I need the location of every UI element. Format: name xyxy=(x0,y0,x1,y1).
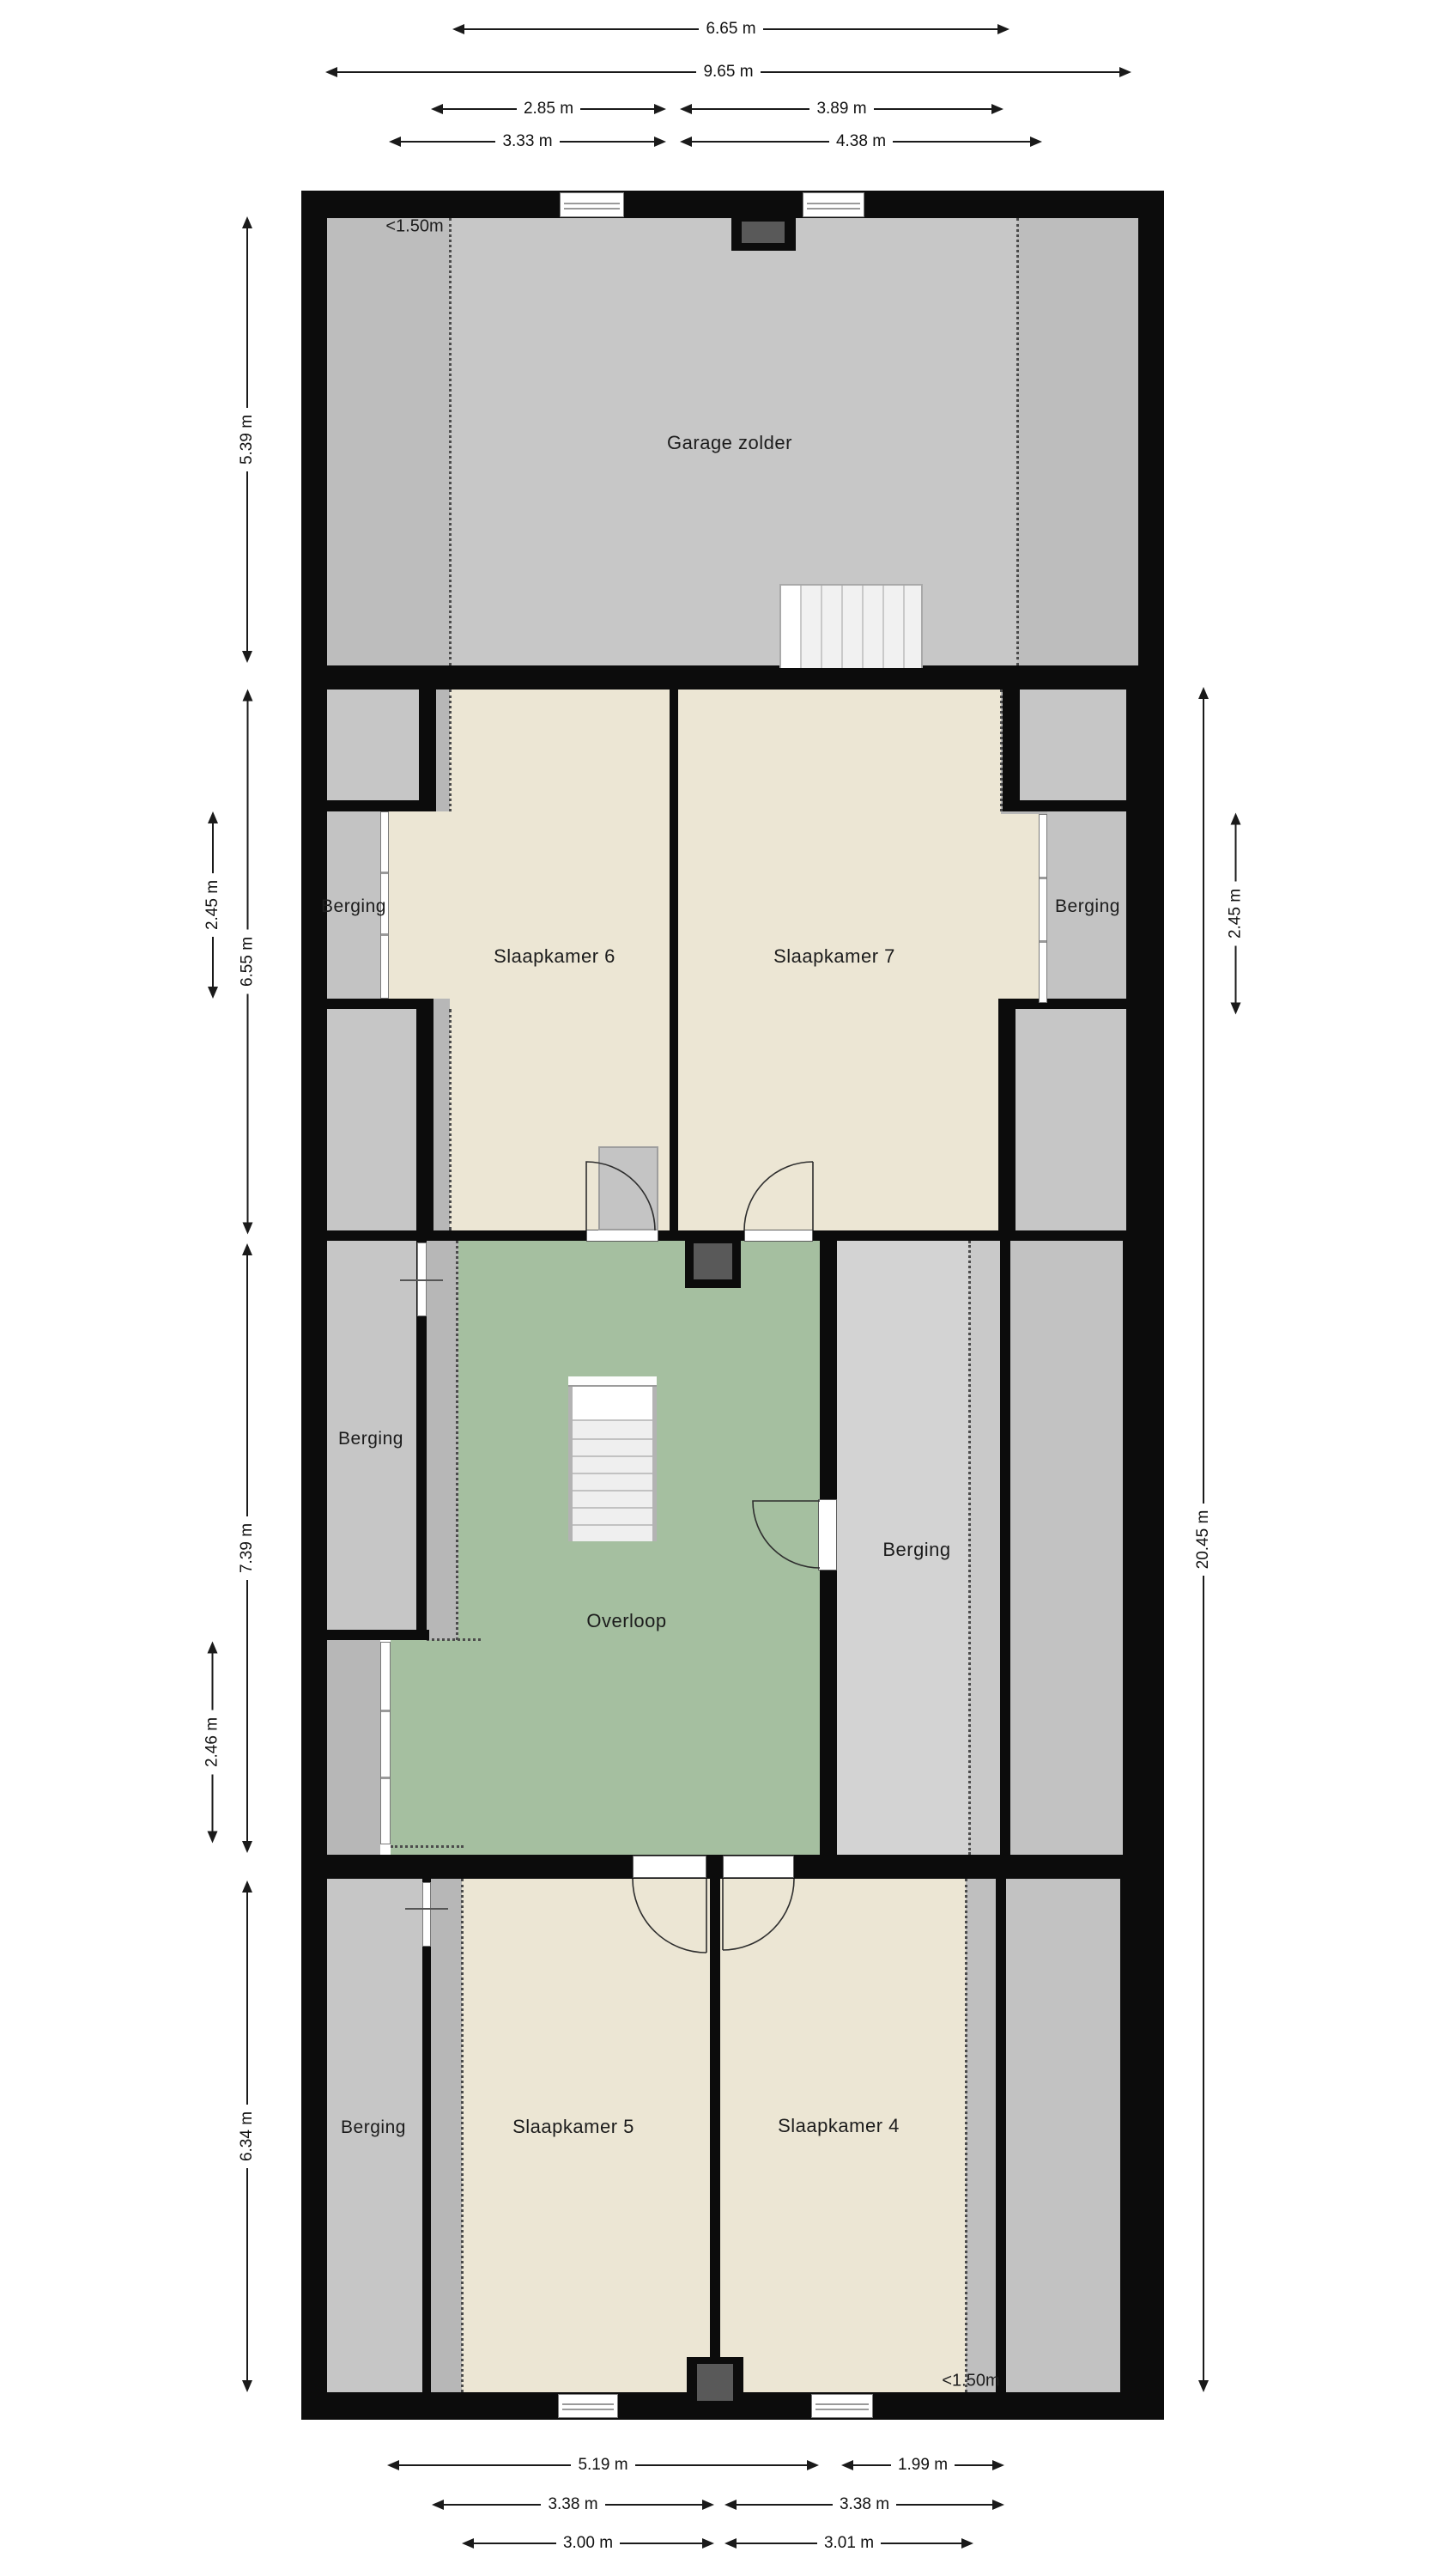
door-swing-sk5 xyxy=(633,1879,706,1953)
floor-plan-canvas: Garage zolder Slaapkamer 6 Slaapkamer 7 … xyxy=(0,0,1449,2576)
door-swing-berging-mid xyxy=(753,1501,820,1568)
door-swing-sk7 xyxy=(744,1162,813,1230)
door-swing-sk4 xyxy=(723,1879,794,1950)
door-swing-arcs xyxy=(0,0,1449,2576)
door-swing-sk6 xyxy=(586,1162,655,1230)
